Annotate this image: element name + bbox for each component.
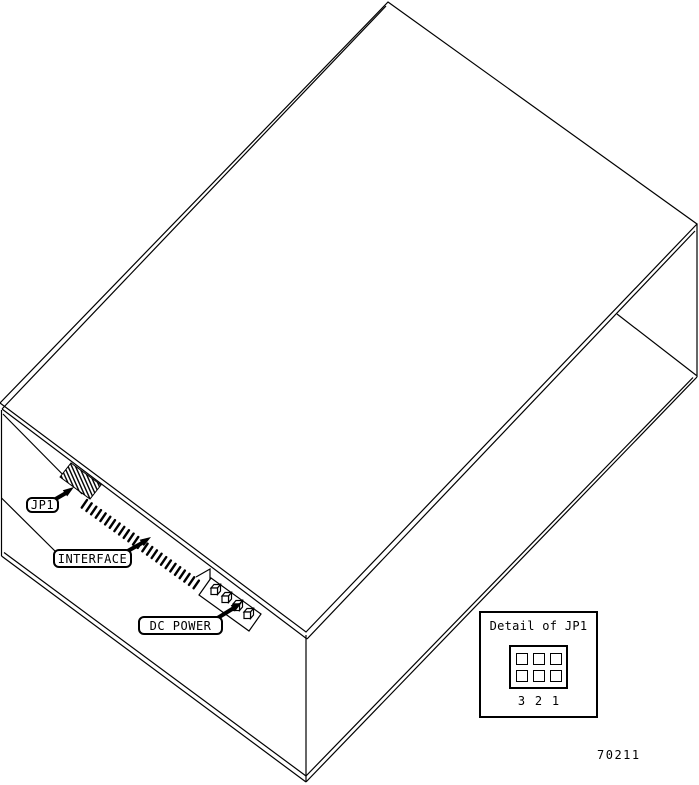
jumper-pin-square: [533, 653, 545, 665]
dc-power-pin: [211, 585, 221, 595]
figure-number: 70211: [597, 748, 641, 762]
jumper-pin-square: [516, 653, 528, 665]
jumper-pin-square: [533, 670, 545, 682]
drive-lid: [0, 2, 697, 639]
jumper-pin-square: [550, 653, 562, 665]
interface-label-text: INTERFACE: [58, 552, 128, 566]
dc-power-label: DC POWER: [138, 616, 223, 635]
jumper-pin-numbers: 3 2 1: [509, 694, 568, 708]
pin-number-2: 2: [533, 694, 545, 708]
side-panel-edge: [617, 314, 697, 376]
pin-number-3: 3: [516, 694, 528, 708]
dc-power-pin: [244, 609, 254, 619]
jp1-detail-title: Detail of JP1: [481, 619, 596, 633]
dc-power-pin: [222, 593, 232, 603]
jp1-detail-box: Detail of JP1 3 2 1: [479, 611, 598, 718]
jp1-label: JP1: [26, 497, 59, 513]
figure-canvas: JP1 INTERFACE DC POWER Detail of JP1 3 2…: [0, 0, 699, 785]
jumper-pin-square: [516, 670, 528, 682]
jumper-pin-square: [550, 670, 562, 682]
pin-number-1: 1: [550, 694, 562, 708]
dc-power-label-text: DC POWER: [150, 619, 212, 633]
jumper-pin-grid: [509, 645, 568, 689]
jp1-label-text: JP1: [31, 498, 54, 512]
interface-label: INTERFACE: [53, 549, 132, 568]
